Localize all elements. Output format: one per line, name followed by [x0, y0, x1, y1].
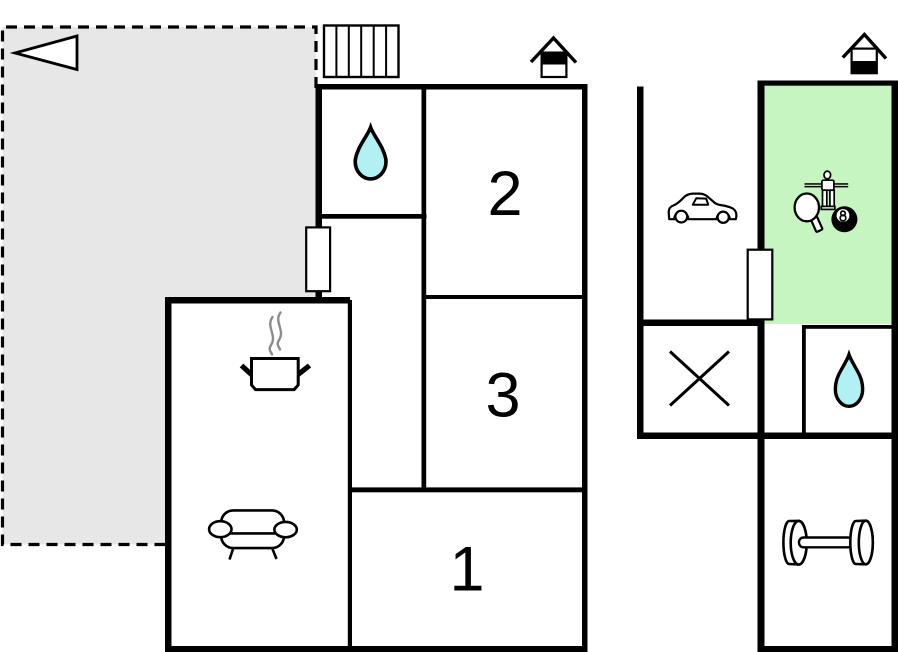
svg-text:2: 2 [487, 159, 522, 229]
svg-text:3: 3 [485, 361, 520, 431]
svg-text:1: 1 [449, 535, 484, 605]
